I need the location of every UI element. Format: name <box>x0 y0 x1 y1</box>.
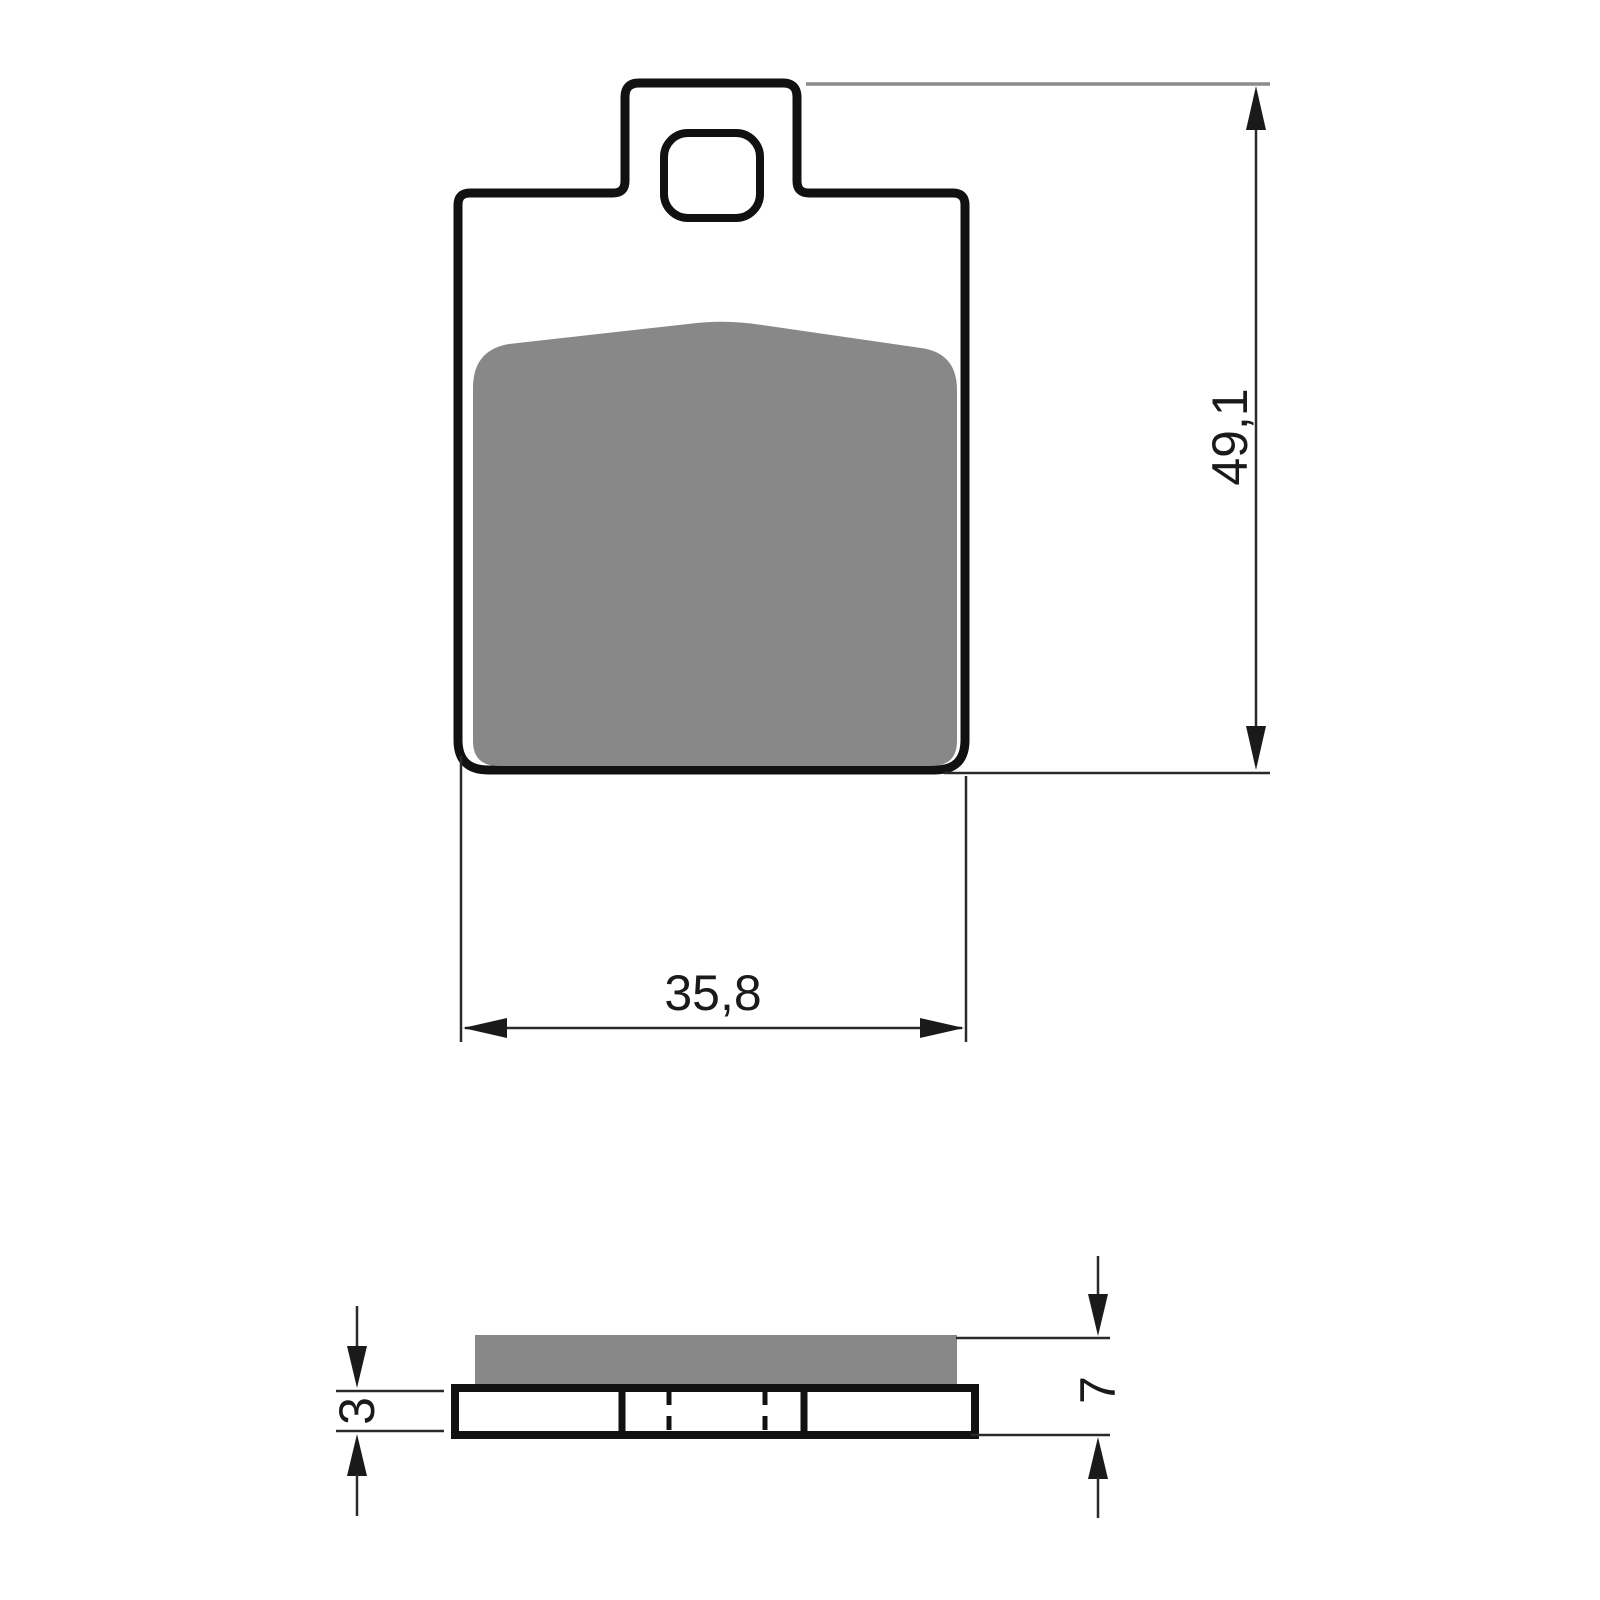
arrow-left-icon <box>463 1018 507 1038</box>
arrow-right-icon <box>920 1018 964 1038</box>
arrow-up-icon <box>347 1434 367 1476</box>
height-dimension-label: 49,1 <box>1202 388 1258 485</box>
friction-material-side <box>475 1335 957 1389</box>
backplate-thickness-label: 3 <box>329 1397 385 1425</box>
arrow-down-icon <box>1246 726 1266 770</box>
backplate-thickness-dimension: 3 <box>329 1306 444 1516</box>
width-dimension: 35,8 <box>461 756 966 1042</box>
brake-pad-drawing: 49,1 35,8 <box>0 0 1600 1600</box>
friction-material-front <box>473 322 957 766</box>
total-thickness-label: 7 <box>1070 1376 1126 1404</box>
backing-plate <box>455 1388 975 1435</box>
technical-drawing-canvas: 49,1 35,8 <box>0 0 1600 1600</box>
arrow-down-icon <box>347 1346 367 1388</box>
front-view <box>458 83 965 770</box>
side-view <box>455 1335 975 1435</box>
mounting-hole <box>664 133 760 218</box>
arrow-up-icon <box>1088 1437 1108 1479</box>
width-dimension-label: 35,8 <box>664 965 761 1021</box>
arrow-up-icon <box>1246 86 1266 130</box>
arrow-down-icon <box>1088 1294 1108 1336</box>
total-thickness-dimension: 7 <box>956 1256 1126 1518</box>
